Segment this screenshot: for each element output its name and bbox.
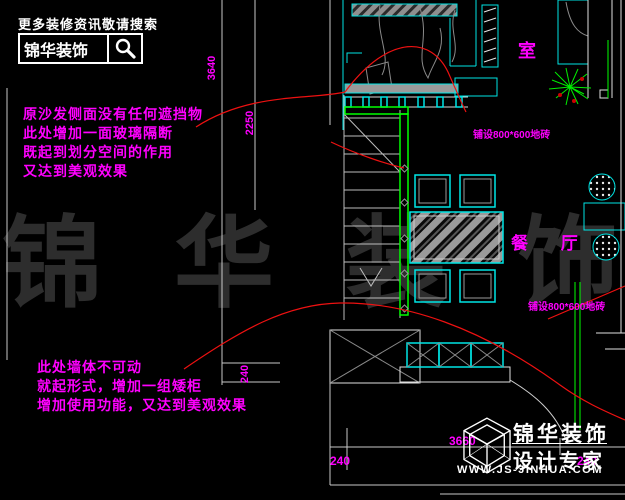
stair-direction-arrow — [360, 268, 382, 286]
note-line: 原沙发侧面没有任何遮挡物 — [23, 105, 203, 124]
right-walls — [558, 0, 625, 349]
tile-note-top: 铺设800*600地砖 — [473, 126, 550, 141]
note-line: 此处墙体不可动 — [37, 358, 247, 377]
floorplan-viewer: 锦华装饰 — [0, 0, 625, 500]
dim-240-left: 240 — [239, 365, 251, 383]
plant-symbol — [549, 68, 591, 105]
glass-partition — [345, 107, 408, 315]
room-label-partial: 室 — [518, 37, 536, 63]
dim-3640: 3640 — [206, 56, 218, 80]
decor-curves — [366, 5, 455, 94]
cabinet — [455, 78, 497, 96]
dim-240-bottom: 240 — [330, 454, 350, 468]
radiator — [482, 5, 498, 67]
logo-website: WWW.JS-JINHUA.COM — [457, 464, 603, 476]
brand-label: 锦华装饰 — [20, 37, 107, 61]
hatched-wall — [352, 4, 457, 16]
dining-table — [410, 212, 503, 263]
note-line: 增加使用功能，又达到美观效果 — [37, 396, 247, 415]
note-glass-partition: 原沙发侧面没有任何遮挡物 此处增加一面玻璃隔断 既起到划分空间的作用 又达到美观… — [23, 105, 203, 181]
room-label-dining: 餐 厅 — [511, 229, 592, 254]
low-cabinets — [407, 343, 503, 367]
note-line: 此处增加一面玻璃隔断 — [23, 124, 203, 143]
note-line: 就起形式，增加一组矮柜 — [37, 377, 247, 396]
header-tagline: 更多装修资讯敬请搜索 — [18, 14, 158, 33]
tile-note-bottom: 铺设800*600地砖 — [528, 298, 605, 313]
shelf — [345, 84, 458, 93]
partition-markers — [401, 165, 408, 312]
note-line: 又达到美观效果 — [23, 162, 203, 181]
note-line: 既起到划分空间的作用 — [23, 143, 203, 162]
logo-divider — [512, 443, 607, 444]
railing — [344, 97, 468, 107]
note-low-cabinet: 此处墙体不可动 就起形式，增加一组矮柜 增加使用功能，又达到美观效果 — [37, 358, 247, 415]
brand-search-box: 锦华装饰 — [18, 33, 143, 64]
dim-2250: 2250 — [244, 111, 256, 135]
staircase — [344, 95, 400, 320]
upper-room — [343, 0, 497, 130]
search-icon — [109, 35, 141, 62]
